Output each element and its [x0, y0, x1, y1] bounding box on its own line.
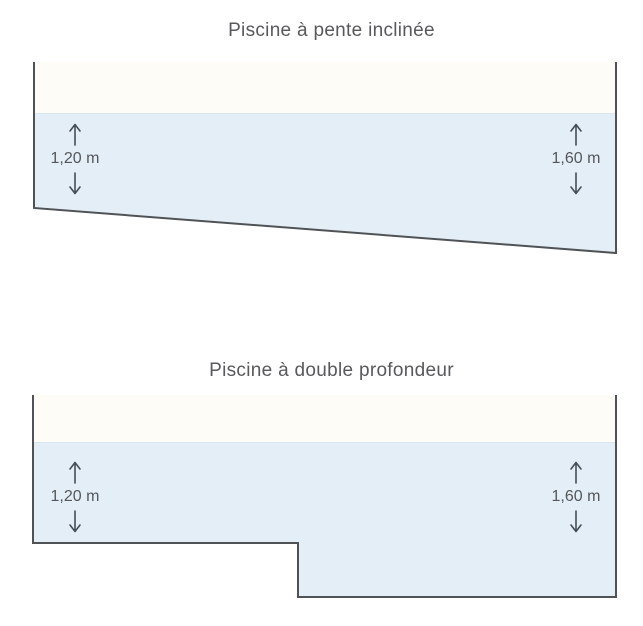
- depth-label: 1,20 m: [51, 149, 100, 169]
- arrow-up-icon: [569, 458, 583, 484]
- arrow-down-icon: [68, 510, 82, 536]
- depth-measure-deep: 1,60 m: [542, 458, 610, 536]
- pool-depth-infographic: Piscine à pente inclinée 1,20 m 1,6: [0, 0, 643, 626]
- pool-interior-fill: [35, 62, 615, 113]
- arrow-up-icon: [569, 120, 583, 146]
- depth-measure-shallow: 1,20 m: [41, 120, 109, 198]
- depth-label: 1,20 m: [51, 487, 100, 507]
- depth-measure-deep: 1,60 m: [542, 120, 610, 198]
- arrow-down-icon: [569, 172, 583, 198]
- arrow-down-icon: [68, 172, 82, 198]
- depth-measure-shallow: 1,20 m: [41, 458, 109, 536]
- pool-interior-fill: [34, 395, 615, 442]
- diagram-inclined-pool: Piscine à pente inclinée 1,20 m 1,6: [0, 0, 643, 313]
- diagram-double-depth-pool: Piscine à double profondeur 1,20 m: [0, 313, 643, 626]
- arrow-up-icon: [68, 458, 82, 484]
- depth-label: 1,60 m: [552, 487, 601, 507]
- arrow-up-icon: [68, 120, 82, 146]
- depth-label: 1,60 m: [552, 149, 601, 169]
- water-fill: [34, 442, 615, 596]
- arrow-down-icon: [569, 510, 583, 536]
